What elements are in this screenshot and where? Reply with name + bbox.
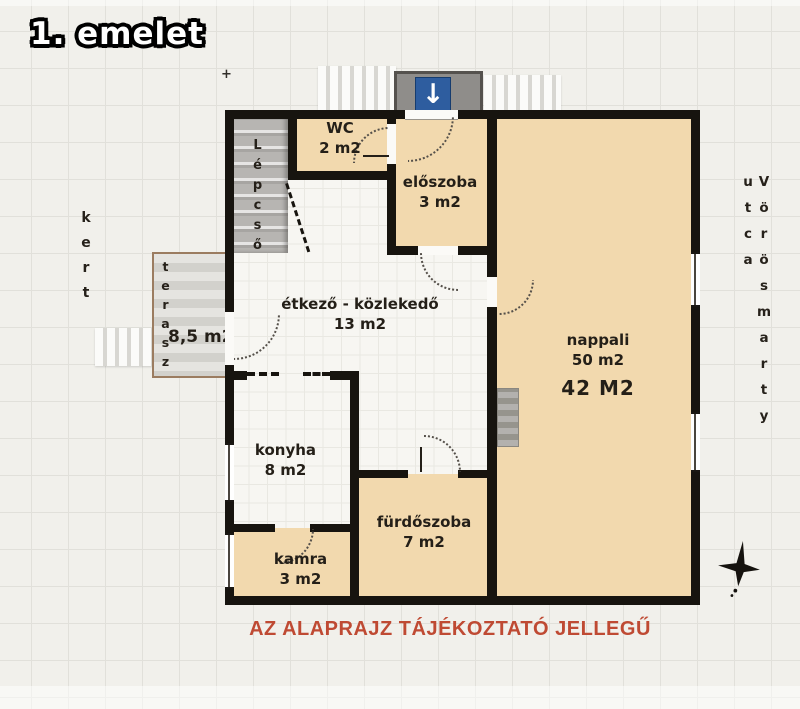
eloszoba-name: előszoba — [394, 172, 486, 192]
konyha-window — [225, 443, 234, 502]
kamra-window — [225, 533, 234, 589]
wc-label: WC 2 m2 — [296, 118, 384, 159]
disclaimer-text: AZ ALAPRAJZ TÁJÉKOZTATÓ JELLEGŰ — [150, 618, 750, 641]
stairs-label: Lépcső — [250, 138, 265, 250]
furdoszoba-door-leaf — [420, 447, 422, 472]
furdoszoba-name: fürdőszoba — [368, 512, 480, 532]
wall-kamra-top-left — [225, 524, 275, 532]
wall-furdoszoba-top-left — [350, 470, 408, 478]
nappali-label: nappali 50 m2 42 M2 — [548, 330, 648, 402]
etkezo-label: étkező - közlekedő 13 m2 — [270, 294, 450, 335]
nappali-door — [487, 277, 497, 307]
wall-furdoszoba-top-right — [458, 470, 497, 478]
etkezo-area: 13 m2 — [270, 314, 450, 334]
wall-kamra-top-right — [310, 524, 359, 532]
eloszoba-area: 3 m2 — [394, 192, 486, 212]
bottom-light-band — [0, 686, 800, 709]
konyha-label: konyha 8 m2 — [243, 440, 328, 481]
kamra-name: kamra — [258, 549, 343, 569]
furdoszoba-area: 7 m2 — [368, 532, 480, 552]
wc-leader-line — [363, 155, 389, 157]
wc-name: WC — [296, 118, 384, 138]
street-label: Vörösmarty utca — [740, 174, 772, 514]
konyha-area: 8 m2 — [243, 460, 328, 480]
nappali-area-corrected: 42 M2 — [548, 375, 648, 402]
kamra-label: kamra 3 m2 — [258, 549, 343, 590]
etkezo-name: étkező - közlekedő — [270, 294, 450, 314]
wall-nappali-left-lower — [487, 307, 497, 605]
outer-wall-bottom — [225, 596, 700, 605]
terrace-area: 8,5 m2 — [168, 326, 234, 349]
radiator — [497, 388, 519, 447]
outer-wall-right — [691, 110, 700, 605]
nappali-window-upper — [691, 252, 700, 307]
nappali-window-lower — [691, 412, 700, 472]
nappali-name: nappali — [548, 330, 648, 350]
konyha-name: konyha — [243, 440, 328, 460]
wall-wc-bottom — [288, 171, 396, 180]
wall-konyha-right — [350, 371, 359, 605]
eloszoba-label: előszoba 3 m2 — [394, 172, 486, 213]
furdoszoba-label: fürdőszoba 7 m2 — [368, 512, 480, 553]
terrace-door — [225, 312, 234, 365]
top-light-band — [0, 0, 800, 6]
nappali-area: 50 m2 — [548, 350, 648, 370]
garden-steps — [95, 328, 155, 366]
entrance-steps-right — [484, 75, 561, 113]
opening-dashed-1 — [247, 372, 279, 376]
floor-plan: 1. emelet + kert Vörösmarty utca ↓ teras… — [0, 0, 800, 709]
kamra-area: 3 m2 — [258, 569, 343, 589]
survey-cross-marker: + — [221, 67, 232, 82]
wall-konyha-top-left — [225, 371, 247, 380]
compass-icon — [712, 538, 768, 602]
page-title: 1. emelet — [30, 16, 204, 52]
entrance-arrow-icon: ↓ — [415, 77, 451, 113]
garden-label: kert — [78, 210, 94, 320]
wall-nappali-left-upper — [487, 110, 497, 277]
entrance-steps-left — [318, 66, 396, 112]
opening-dashed-2 — [303, 372, 330, 376]
